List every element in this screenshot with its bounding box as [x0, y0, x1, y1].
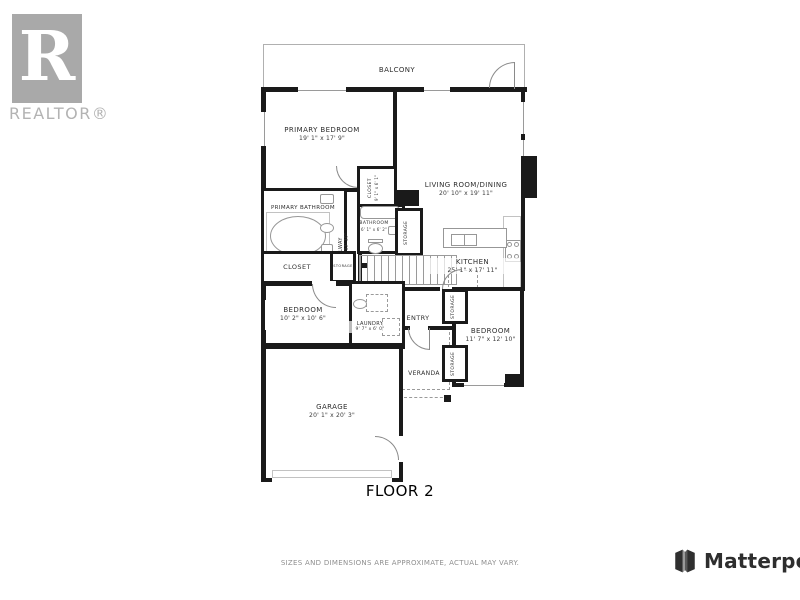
matterport-logo: Matterport [672, 547, 792, 575]
matterport-icon [672, 548, 698, 574]
room-label-bedroom-right: BEDROOM 11' 7" x 12' 10" [448, 327, 533, 343]
room-dims: 9' 7" x 6' 0" [344, 327, 396, 333]
room-dims: 20' 10" x 19' 11" [406, 190, 526, 198]
garage-side-door-opening [399, 436, 403, 462]
room-label-closet-primary: CLOSET [267, 263, 327, 271]
room-name: LIVING ROOM/DINING [406, 181, 526, 190]
room-label-storage-right-bottom: STORAGE [451, 351, 457, 377]
room-dims: 11' 7" x 12' 10" [448, 336, 533, 344]
wall-fireplace [505, 374, 523, 384]
kitchen-sink-divider [464, 234, 465, 246]
room-label-balcony: BALCONY [347, 66, 447, 75]
window [298, 87, 346, 92]
room-label-primary-bedroom: PRIMARY BEDROOM 19' 1" x 17' 9" [262, 126, 382, 142]
walkway-dashed [404, 397, 448, 398]
window [520, 102, 526, 134]
room-name: PRIMARY BATHROOM [253, 205, 353, 212]
room-name: GARAGE [277, 403, 387, 412]
room-dims: 19' 1" x 17' 9" [262, 135, 382, 143]
room-name: KITCHEN [425, 258, 520, 267]
room-label-entry: ENTRY [398, 314, 438, 322]
bathtub-small [360, 206, 400, 219]
floor-label: FLOOR 2 [330, 482, 470, 500]
room-label-laundry: LAUNDRY 9' 7" x 6' 0" [344, 321, 396, 333]
room-dims: 9' 1" x 6' 1" [374, 172, 379, 204]
room-label-closet-upper: CLOSET 9' 1" x 6' 1" [368, 172, 379, 204]
room-label-storage-tiny: STORAGE [330, 264, 356, 268]
window [520, 140, 526, 156]
matterport-wordmark: Matterport [704, 549, 800, 573]
realtor-logo: R [12, 14, 82, 103]
room-laundry [349, 281, 405, 349]
room-name: BEDROOM [258, 306, 348, 315]
toilet [368, 243, 383, 254]
balcony-door-leaf [514, 62, 515, 89]
garage-door [272, 470, 392, 478]
bathtub [270, 216, 326, 256]
window [424, 87, 450, 92]
laundry-sink [353, 299, 367, 309]
realtor-logo-letter: R [12, 14, 82, 103]
room-label-bedroom-left: BEDROOM 10' 2" x 10' 6" [258, 306, 348, 322]
washer-dashed [366, 294, 388, 312]
room-label-storage-right-top: STORAGE [451, 294, 457, 320]
room-label-kitchen: KITCHEN 25' 1" x 17' 11" [425, 258, 520, 274]
stove-burner [514, 242, 519, 247]
room-label-garage: GARAGE 20' 1" x 20' 3" [277, 403, 387, 419]
toilet [320, 223, 334, 233]
disclaimer-text: SIZES AND DIMENSIONS ARE APPROXIMATE, AC… [200, 559, 600, 567]
stove-burner [507, 242, 512, 247]
toilet [320, 194, 334, 204]
room-label-living-dining: LIVING ROOM/DINING 20' 10" x 19' 11" [406, 181, 526, 197]
room-label-storage-mid: STORAGE [404, 216, 410, 250]
room-name: BEDROOM [448, 327, 533, 336]
room-dims: 10' 2" x 10' 6" [258, 315, 348, 323]
window [464, 383, 504, 387]
room-label-veranda: VERANDA [400, 370, 448, 378]
room-dims: 20' 1" x 20' 3" [277, 412, 387, 420]
room-name: PRIMARY BEDROOM [262, 126, 382, 135]
realtor-logo-text: REALTOR® [9, 104, 119, 123]
post [444, 395, 451, 402]
stair-newel [362, 263, 367, 268]
room-dims: 25' 1" x 17' 11" [425, 267, 520, 275]
